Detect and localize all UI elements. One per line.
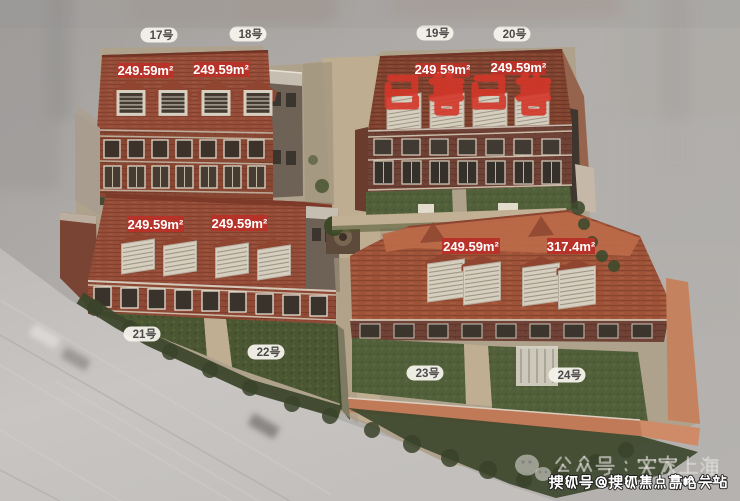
svg-text:249.59m²: 249.59m² xyxy=(491,60,547,75)
svg-text:249.59m²: 249.59m² xyxy=(443,239,499,254)
svg-text:23: 23 xyxy=(416,368,429,380)
svg-text:21: 21 xyxy=(133,329,146,341)
svg-text:24: 24 xyxy=(558,370,571,382)
svg-text:249.59m²: 249.59m² xyxy=(212,216,268,231)
svg-text:317.4m²: 317.4m² xyxy=(547,239,596,254)
svg-text:249.59m²: 249.59m² xyxy=(128,217,184,232)
svg-text:18: 18 xyxy=(239,29,252,41)
svg-text:19: 19 xyxy=(426,28,439,40)
svg-text:17: 17 xyxy=(150,30,163,42)
svg-text:249.59m²: 249.59m² xyxy=(118,63,174,78)
svg-text:249.59m²: 249.59m² xyxy=(193,62,249,77)
svg-text:22: 22 xyxy=(257,347,270,359)
svg-text:249.59m²: 249.59m² xyxy=(415,62,471,77)
svg-text:20: 20 xyxy=(503,29,516,41)
